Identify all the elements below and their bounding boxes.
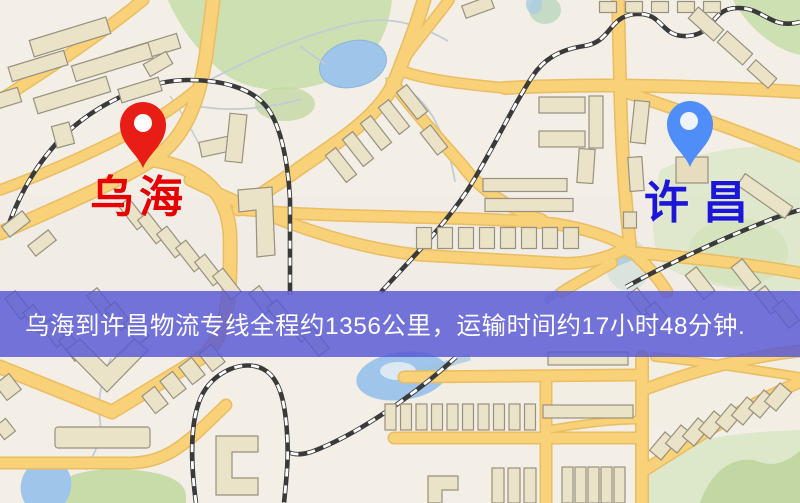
route-info-banner: 乌海到许昌物流专线全程约1356公里，运输时间约17小时48分钟.: [0, 291, 800, 357]
pin-icon: [667, 101, 713, 167]
map-canvas[interactable]: 乌海到许昌物流专线全程约1356公里，运输时间约17小时48分钟. 乌海 许昌: [0, 0, 800, 503]
destination-label: 许昌: [644, 180, 762, 225]
base-map: [0, 0, 800, 503]
route-info-text: 乌海到许昌物流专线全程约1356公里，运输时间约17小时48分钟.: [0, 307, 745, 342]
pin-icon: [120, 102, 166, 168]
destination-pin[interactable]: [662, 96, 718, 168]
origin-pin[interactable]: [115, 97, 171, 169]
pin-hole: [680, 112, 698, 130]
origin-label: 乌海: [90, 176, 188, 220]
pin-hole: [134, 114, 152, 132]
